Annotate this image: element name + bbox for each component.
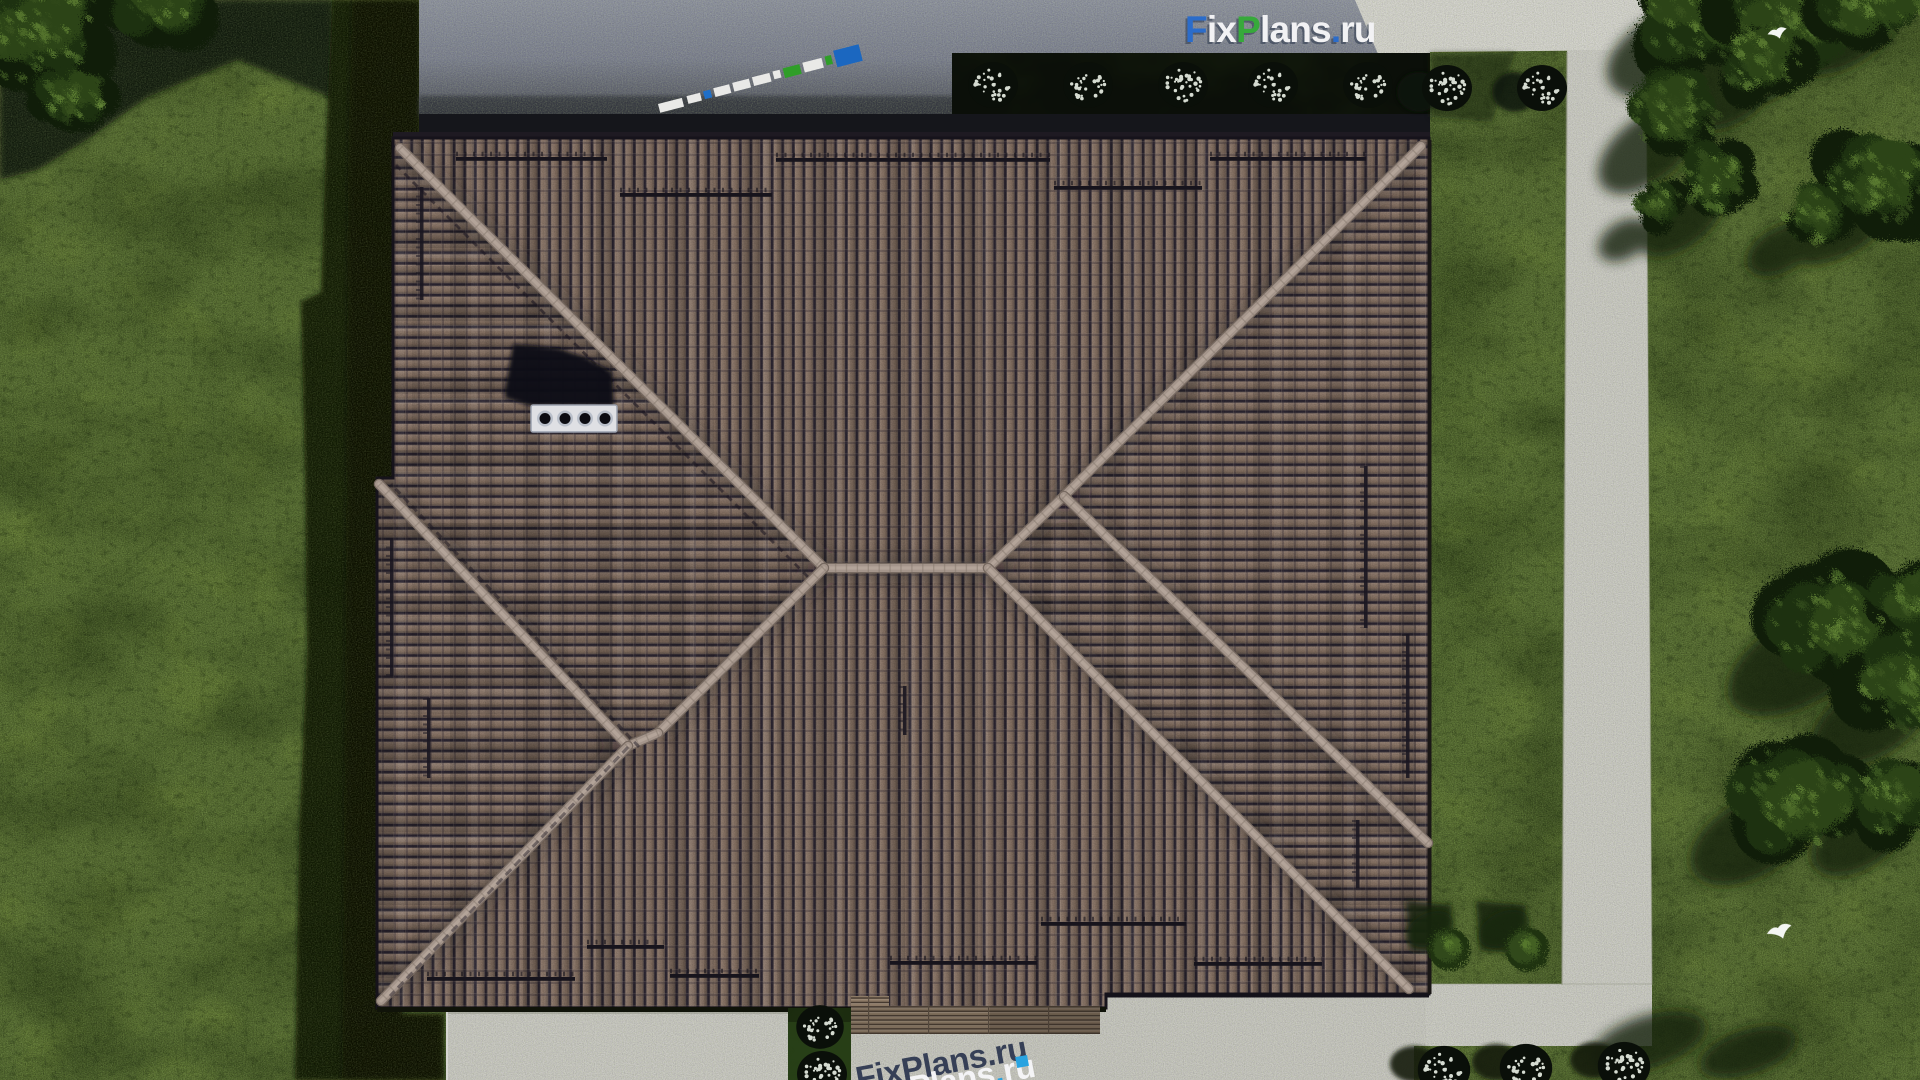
svg-text:FixPlans.ru: FixPlans.ru (1185, 9, 1376, 50)
